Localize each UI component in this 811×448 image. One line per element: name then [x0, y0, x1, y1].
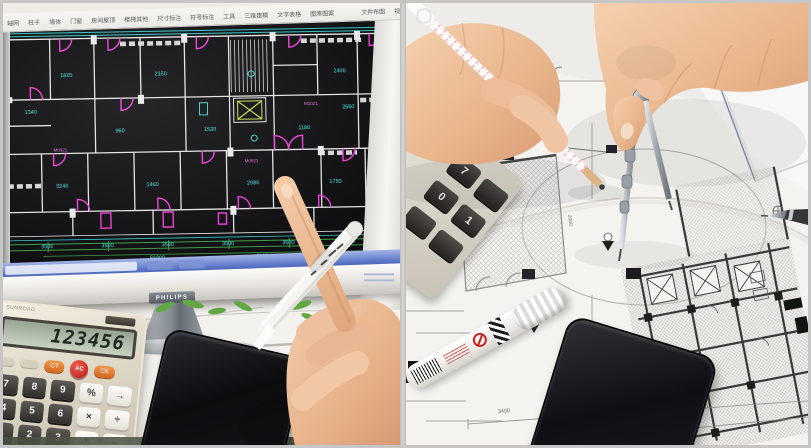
mechanical-pencil — [761, 209, 808, 225]
right-photo-drafting: 2000 — [406, 3, 808, 445]
hand-pointing-with-pen — [3, 3, 400, 445]
compass-needle — [669, 201, 672, 210]
eraser-cap — [414, 5, 428, 19]
drafting-hands — [406, 3, 808, 445]
photo-collage: 1820 2150 960 1520 2400 1180 3240 1460 2… — [0, 0, 811, 448]
pencil-graphite — [599, 184, 605, 190]
left-photo-cad-workstation: 1820 2150 960 1520 2400 1180 3240 1460 2… — [3, 3, 400, 445]
